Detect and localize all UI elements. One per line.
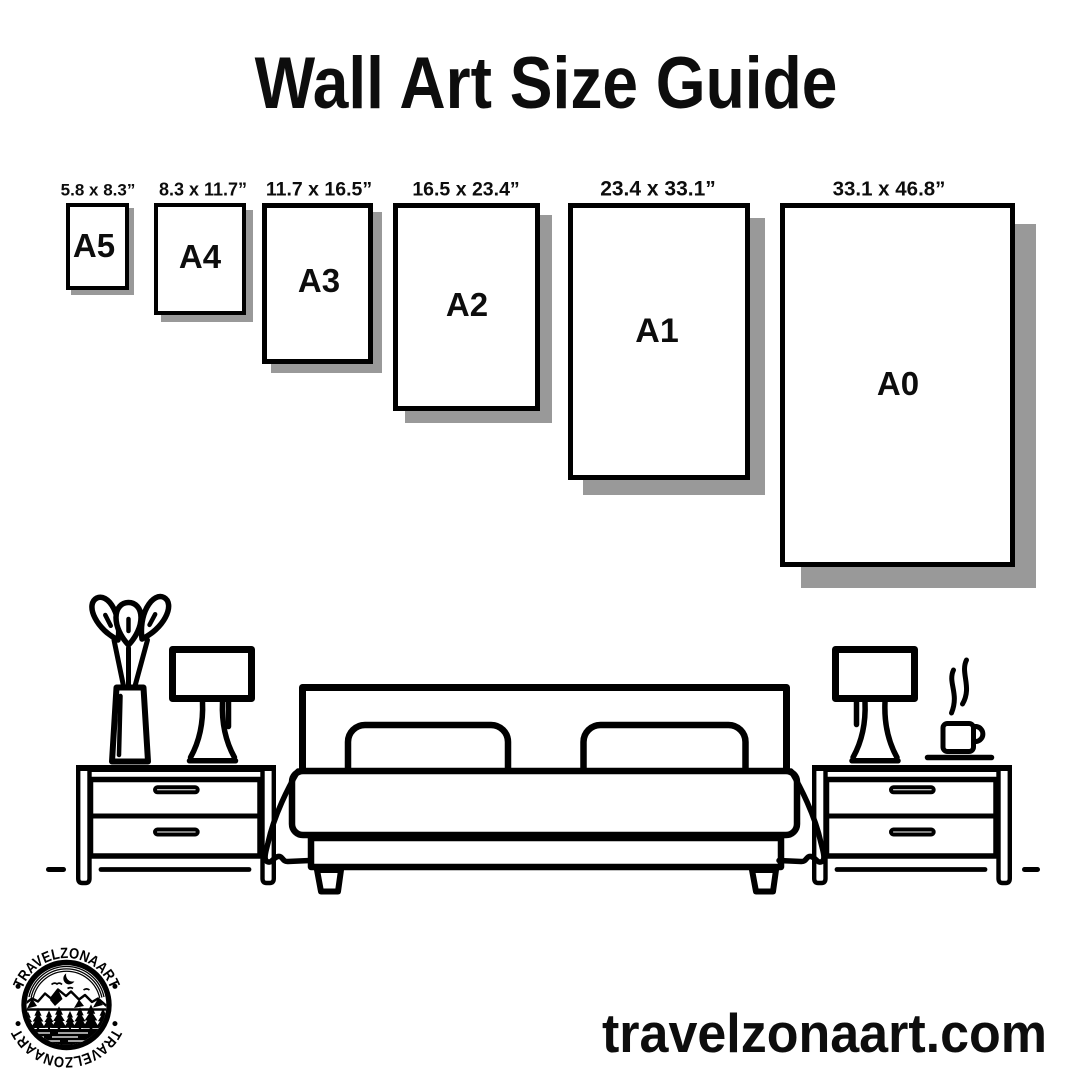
svg-text:16.5 x 23.4”: 16.5 x 23.4” xyxy=(412,179,519,201)
svg-text:23.4 x 33.1”: 23.4 x 33.1” xyxy=(600,178,716,201)
svg-text:8.3 x 11.7”: 8.3 x 11.7” xyxy=(159,180,247,200)
svg-text:travelzonaart.com: travelzonaart.com xyxy=(602,1004,1047,1065)
svg-text:33.1 x 46.8”: 33.1 x 46.8” xyxy=(833,178,946,201)
svg-text:Wall Art Size Guide: Wall Art Size Guide xyxy=(255,42,838,124)
svg-text:A2: A2 xyxy=(446,286,488,323)
svg-text:A1: A1 xyxy=(635,312,678,350)
svg-text:A0: A0 xyxy=(877,365,919,402)
svg-text:A4: A4 xyxy=(179,238,222,275)
svg-text:A5: A5 xyxy=(73,227,115,264)
svg-text:5.8 x 8.3”: 5.8 x 8.3” xyxy=(61,181,136,200)
svg-text:A3: A3 xyxy=(298,262,340,299)
svg-text:11.7 x 16.5”: 11.7 x 16.5” xyxy=(266,179,372,201)
